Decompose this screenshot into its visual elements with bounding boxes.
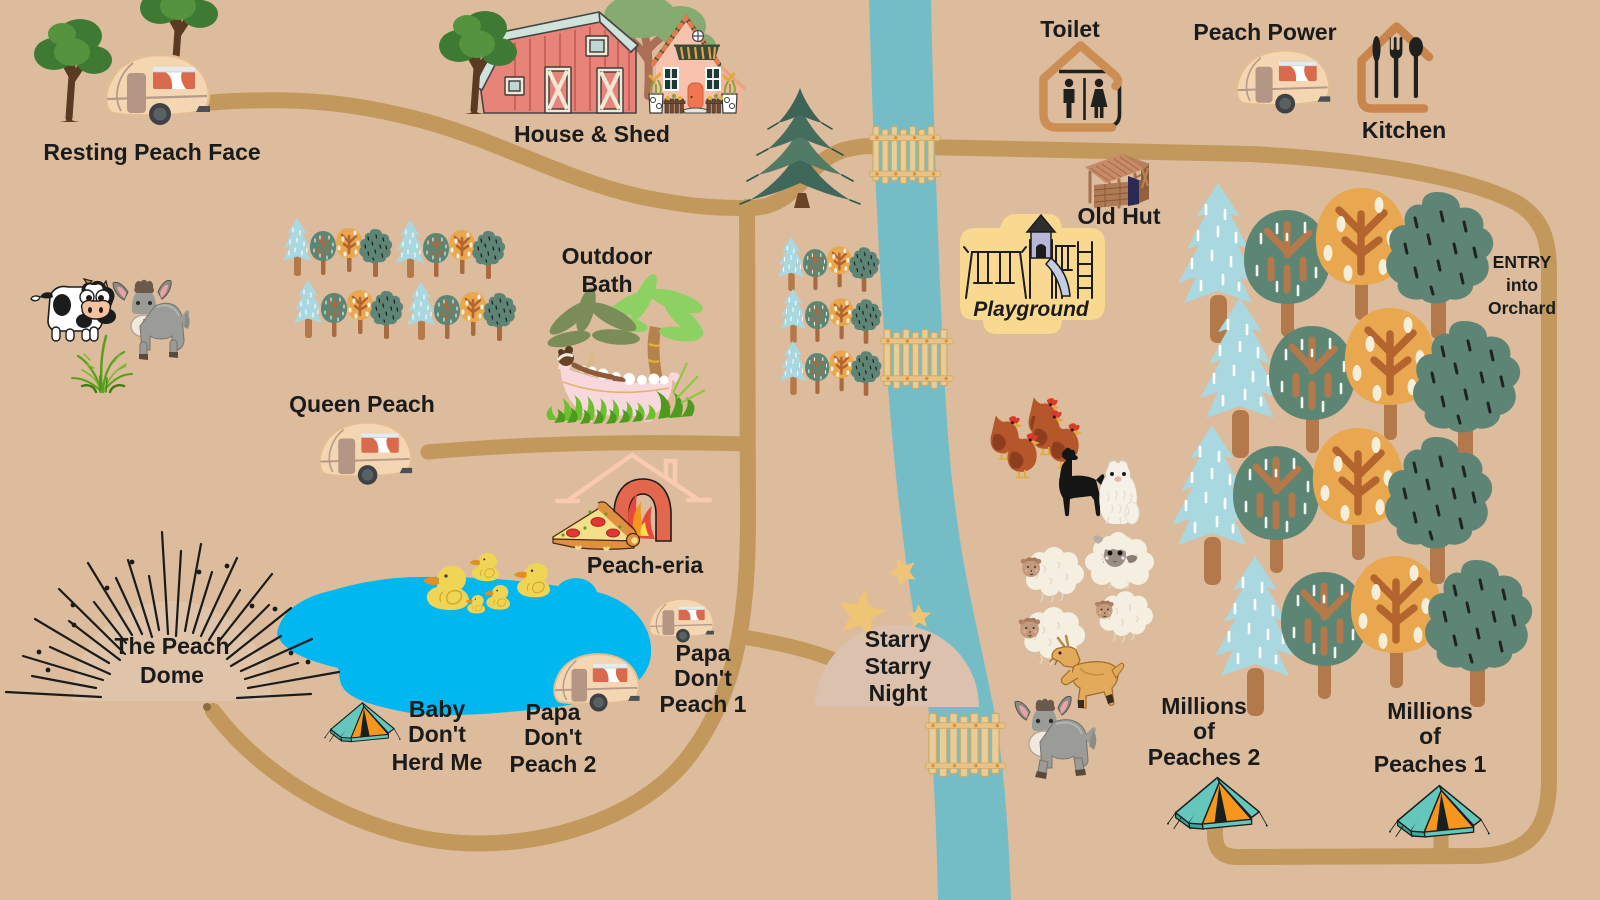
svg-text:Papa: Papa (526, 699, 581, 725)
svg-text:House & Shed: House & Shed (514, 121, 670, 147)
svg-text:ENTRY: ENTRY (1493, 252, 1552, 272)
svg-text:Peach Power: Peach Power (1193, 19, 1336, 45)
svg-text:Peach-eria: Peach-eria (587, 552, 704, 578)
svg-text:Playground: Playground (973, 298, 1090, 321)
svg-text:into: into (1506, 275, 1538, 295)
svg-text:Baby: Baby (409, 696, 465, 722)
svg-text:The Peach: The Peach (114, 633, 229, 659)
svg-text:Papa: Papa (676, 640, 731, 666)
svg-text:Outdoor: Outdoor (562, 243, 653, 269)
svg-text:Millions: Millions (1161, 693, 1247, 719)
svg-text:Dome: Dome (140, 662, 204, 688)
svg-text:Old Hut: Old Hut (1077, 203, 1160, 229)
svg-text:Millions: Millions (1387, 698, 1473, 724)
svg-text:Don't: Don't (524, 724, 582, 750)
svg-text:Bath: Bath (581, 271, 632, 297)
svg-text:of: of (1193, 718, 1215, 744)
svg-text:of: of (1419, 723, 1441, 749)
svg-text:Orchard: Orchard (1488, 298, 1556, 318)
svg-text:Herd Me: Herd Me (392, 749, 483, 775)
svg-text:Don't: Don't (674, 665, 732, 691)
svg-text:Peaches 1: Peaches 1 (1374, 751, 1487, 777)
svg-text:Resting Peach Face: Resting Peach Face (43, 139, 260, 165)
svg-text:Kitchen: Kitchen (1362, 117, 1446, 143)
svg-text:Queen Peach: Queen Peach (289, 391, 435, 417)
svg-text:Starry: Starry (865, 653, 932, 679)
svg-text:Peach 1: Peach 1 (660, 691, 747, 717)
svg-text:Toilet: Toilet (1040, 16, 1100, 42)
svg-text:Starry: Starry (865, 626, 932, 652)
svg-text:Peach 2: Peach 2 (510, 751, 597, 777)
svg-text:Don't: Don't (408, 721, 466, 747)
svg-text:Peaches 2: Peaches 2 (1148, 744, 1261, 770)
svg-text:Night: Night (869, 680, 928, 706)
